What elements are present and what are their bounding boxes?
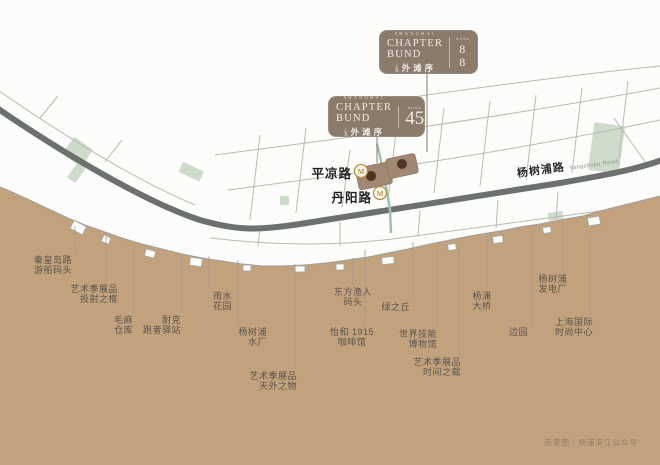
pier [492, 235, 503, 243]
pier [144, 249, 155, 258]
pier [243, 265, 251, 271]
badge-cn-name: 外滩序 [402, 62, 437, 74]
badge-number-block: BUND 45 [398, 106, 424, 128]
badge-number: 45 [405, 110, 424, 128]
badge-shanghai-text: SHANGHAI [395, 31, 436, 36]
pier [448, 243, 457, 250]
badge-shanghai-text: SHANGHAI [344, 95, 385, 100]
green-block [280, 196, 289, 205]
landmark-label: 毛麻仓库 [114, 316, 133, 336]
pier [543, 226, 552, 233]
pier [587, 216, 600, 226]
landmark-label: 东方渔人码头 [334, 288, 372, 308]
station-label-pingliang: 平凉路 [311, 163, 352, 182]
landmark-label: 耐克跑者驿站 [143, 316, 181, 336]
location-map: M M SHANGHAI CHAPTER BUND 上海 外滩序 BUND 88… [0, 0, 660, 465]
landmark-label: 艺术季展品时间之载 [413, 358, 461, 378]
map-caption: 示意图｜杨浦滨江公众号 [545, 437, 639, 448]
badge-brand: SHANGHAI CHAPTER BUND 上海 外滩序 [387, 31, 443, 74]
metro-icon-danyang: M [374, 187, 387, 200]
landmark-label: 杨树浦水厂 [238, 328, 267, 348]
badge-bund45: SHANGHAI CHAPTER BUND 上海 外滩序 BUND 45 [328, 96, 425, 137]
landmark-label: 怡和 1915咖啡馆 [330, 328, 374, 348]
landmark-label: 秦皇岛路游船码头 [34, 256, 72, 276]
landmark-label: 上海国际时尚中心 [555, 318, 593, 338]
landmark-label: 艺术季展品天外之物 [249, 372, 297, 392]
landmark-label: 世界技能博物馆 [399, 330, 437, 350]
badge-cn-prefix: 上海 [394, 64, 399, 72]
badge-chapterbund-text: CHAPTER BUND [387, 38, 443, 60]
parcel-dot-88 [397, 159, 407, 169]
landmark-label: 杨浦大桥 [472, 292, 491, 312]
landmark-label: 绿之丘 [381, 303, 410, 313]
pier [382, 256, 395, 264]
badge-bund88: SHANGHAI CHAPTER BUND 上海 外滩序 BUND 88 [379, 30, 478, 74]
badge-number-block: BUND 88 [449, 37, 470, 68]
pier [295, 266, 305, 272]
badge-chapterbund-text: CHAPTER BUND [336, 102, 392, 124]
svg-text:M: M [358, 168, 365, 176]
landmark-label: 边园 [509, 328, 528, 338]
badge-cn-prefix: 上海 [343, 128, 348, 136]
station-label-danyang: 丹阳路 [331, 187, 372, 206]
badge-number: 88 [456, 42, 468, 68]
map-canvas: M M [0, 0, 660, 465]
landmark-label: 雨水花园 [213, 292, 232, 312]
badge-brand: SHANGHAI CHAPTER BUND 上海 外滩序 [336, 95, 392, 138]
badge-cn-name: 外滩序 [351, 126, 386, 138]
svg-text:M: M [377, 190, 384, 198]
badge-bund-label: BUND [456, 37, 470, 41]
landmark-label: 杨树浦发电厂 [538, 275, 567, 295]
pier [336, 264, 344, 270]
metro-icon-pingliang: M [355, 165, 368, 178]
pier [190, 257, 203, 267]
landmark-label: 艺术季展品投射之框 [70, 285, 118, 305]
